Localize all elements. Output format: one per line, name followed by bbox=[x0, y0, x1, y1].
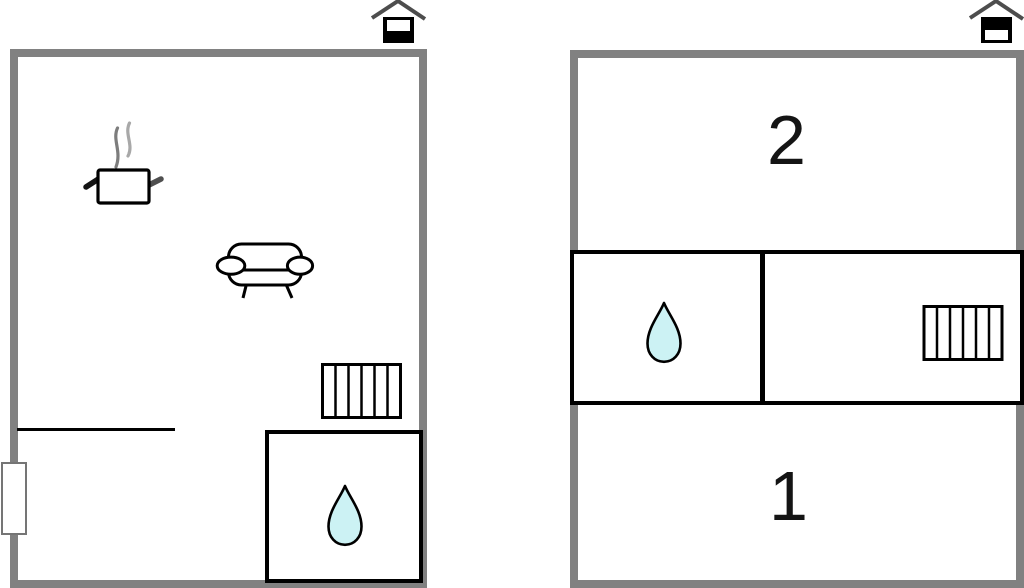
room-label-2: 2 bbox=[767, 105, 805, 175]
steam-line-light bbox=[128, 123, 130, 156]
interior-wall bbox=[17, 428, 175, 431]
floor-plan-canvas: 2 1 bbox=[0, 0, 1024, 588]
house-level-icon bbox=[368, 0, 428, 44]
radiator-icon bbox=[321, 363, 402, 419]
cooking-pot-icon bbox=[80, 118, 168, 206]
house-level-icon bbox=[966, 0, 1024, 44]
steam-line-dark bbox=[116, 128, 118, 167]
radiator-icon bbox=[922, 305, 1004, 361]
water-drop-icon bbox=[645, 301, 683, 364]
band-divider-wall bbox=[760, 250, 765, 405]
window bbox=[1, 462, 27, 535]
room-label-1: 1 bbox=[769, 461, 807, 531]
water-drop-icon bbox=[326, 484, 364, 547]
pot-body bbox=[98, 170, 149, 203]
sofa-icon bbox=[210, 238, 316, 304]
